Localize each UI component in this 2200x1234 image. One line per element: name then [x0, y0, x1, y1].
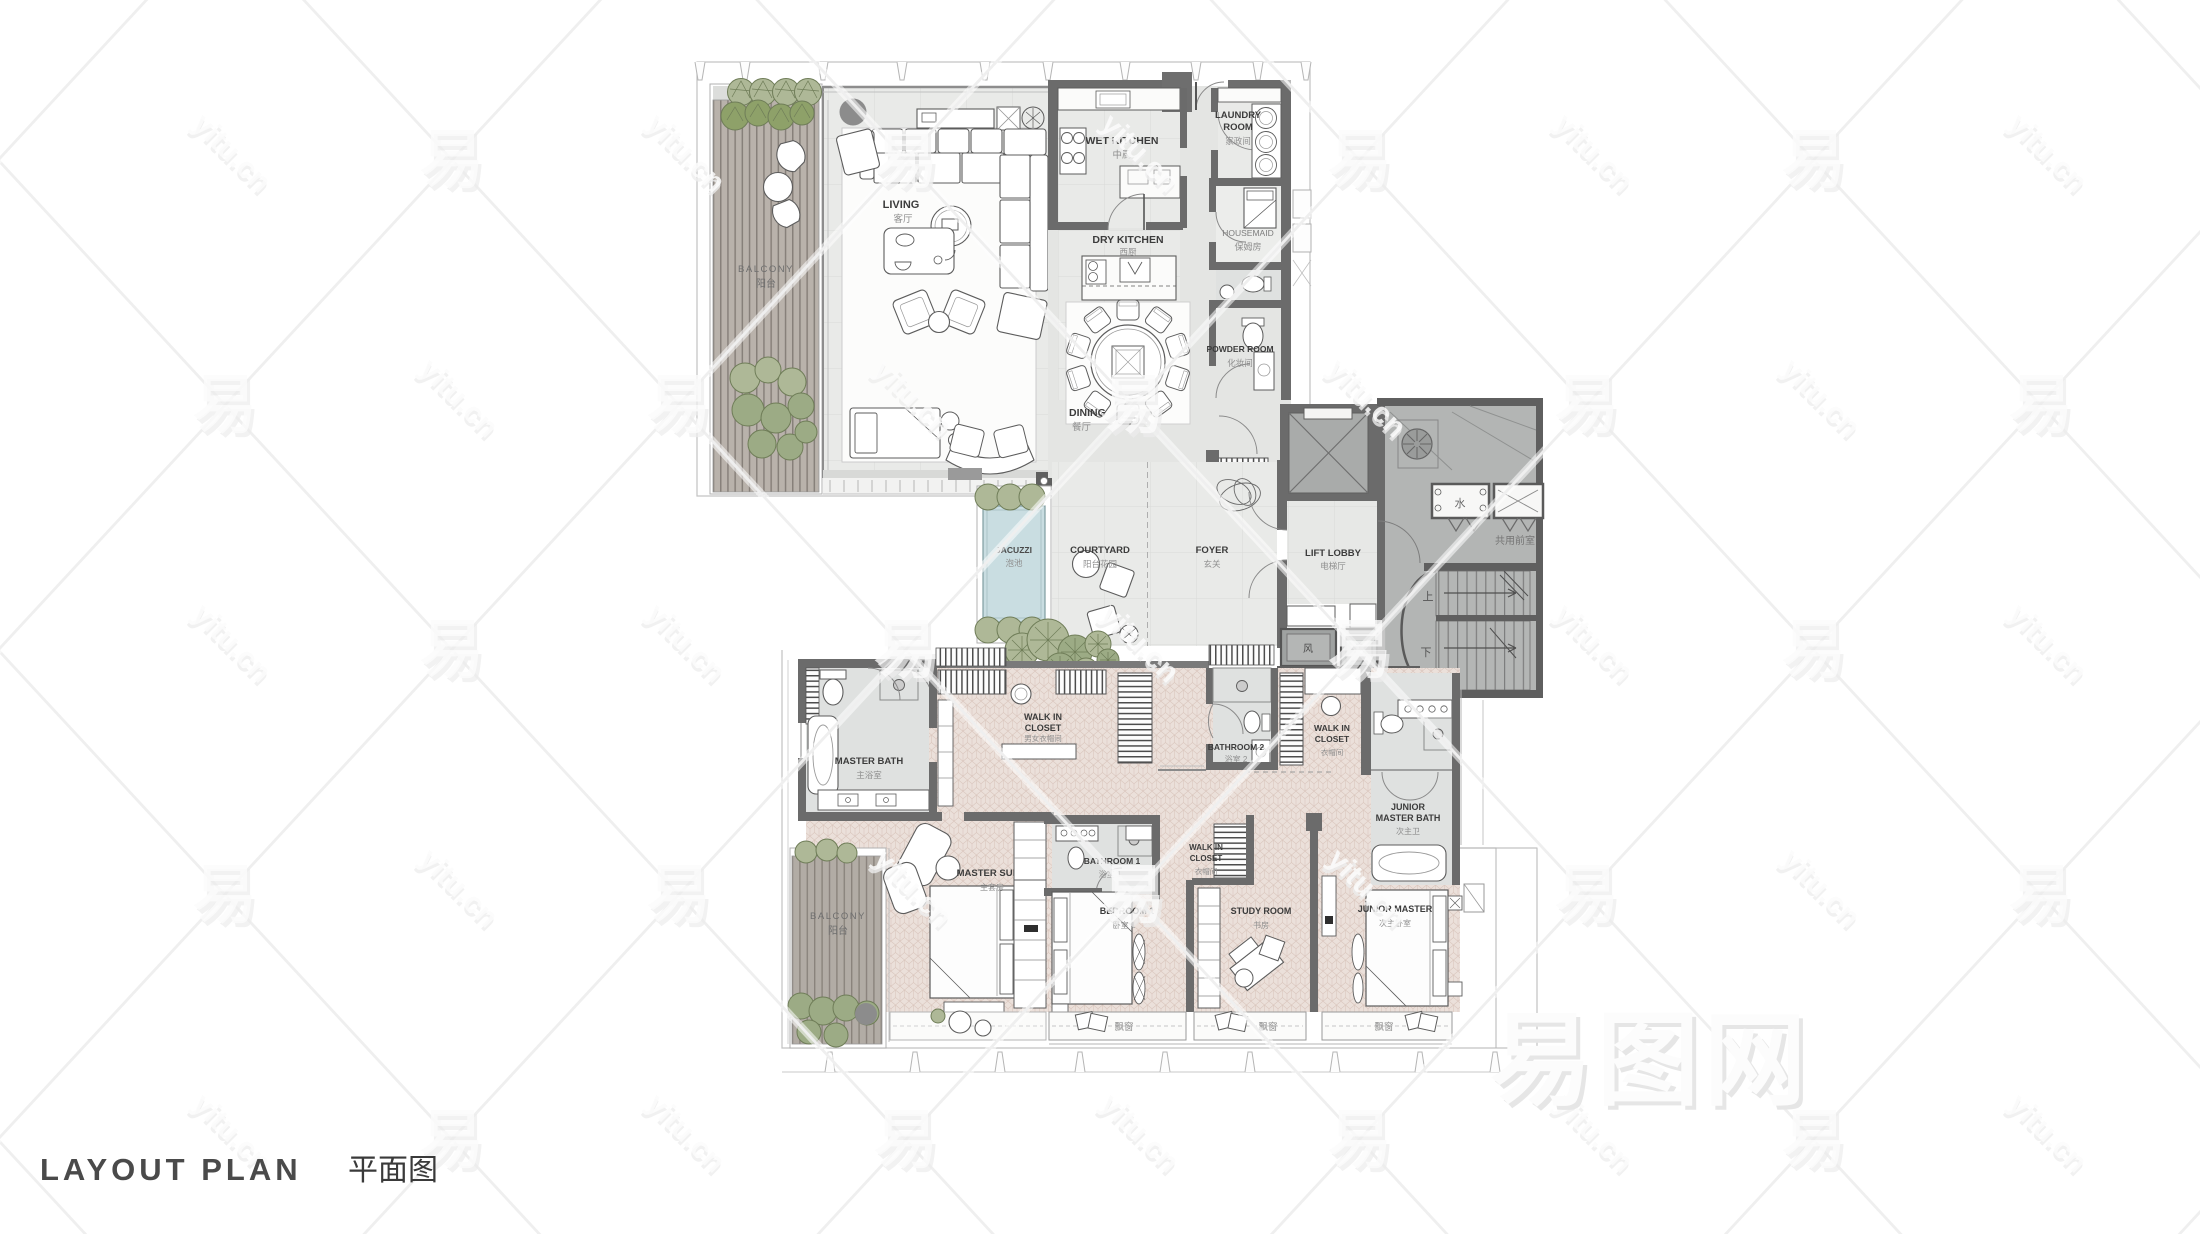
svg-text:BATHROOM 2: BATHROOM 2	[1208, 742, 1265, 752]
svg-text:LAUNDRY: LAUNDRY	[1215, 110, 1262, 121]
svg-text:BALCONY: BALCONY	[738, 264, 794, 275]
svg-text:MASTER BATH: MASTER BATH	[835, 756, 904, 767]
svg-text:LAYOUT PLAN: LAYOUT PLAN	[40, 1152, 302, 1187]
svg-text:共用前室: 共用前室	[1495, 534, 1535, 547]
svg-text:飘窗: 飘窗	[1374, 1021, 1393, 1033]
svg-text:男女衣帽间: 男女衣帽间	[1024, 733, 1062, 743]
svg-text:上: 上	[1423, 590, 1434, 603]
svg-text:WALK IN: WALK IN	[1314, 723, 1350, 733]
svg-text:易: 易	[2009, 859, 2073, 931]
svg-text:餐厅: 餐厅	[1072, 421, 1092, 433]
svg-text:LIFT LOBBY: LIFT LOBBY	[1305, 548, 1362, 559]
svg-text:BALCONY: BALCONY	[810, 911, 866, 922]
svg-text:下: 下	[1421, 647, 1432, 659]
svg-text:客厅: 客厅	[893, 213, 913, 225]
svg-text:易: 易	[874, 124, 938, 196]
svg-text:易: 易	[1101, 859, 1165, 931]
svg-text:易: 易	[874, 614, 938, 686]
svg-text:STUDY ROOM: STUDY ROOM	[1231, 906, 1292, 916]
svg-text:易: 易	[1328, 124, 1392, 196]
svg-text:易: 易	[1328, 1104, 1392, 1176]
svg-text:阳台: 阳台	[756, 277, 776, 290]
svg-text:保姆房: 保姆房	[1234, 241, 1261, 252]
svg-text:易: 易	[2009, 369, 2073, 441]
svg-text:易: 易	[1782, 614, 1846, 686]
svg-text:风: 风	[1303, 643, 1313, 655]
svg-text:易: 易	[1101, 369, 1165, 441]
svg-text:易: 易	[647, 369, 711, 441]
svg-text:易: 易	[647, 859, 711, 931]
svg-text:ROOM: ROOM	[1223, 122, 1253, 133]
svg-text:易: 易	[420, 614, 484, 686]
svg-text:CLOSET: CLOSET	[1025, 723, 1062, 733]
svg-text:COURTYARD: COURTYARD	[1070, 545, 1130, 556]
svg-text:易: 易	[1555, 369, 1619, 441]
svg-text:JUNIOR: JUNIOR	[1391, 802, 1426, 812]
svg-text:衣帽间: 衣帽间	[1321, 747, 1344, 757]
svg-text:MASTER BATH: MASTER BATH	[1376, 813, 1441, 823]
svg-text:CLOSET: CLOSET	[1315, 734, 1350, 744]
svg-text:CLOSET: CLOSET	[1190, 854, 1223, 863]
svg-text:易: 易	[1782, 124, 1846, 196]
svg-text:LIVING: LIVING	[883, 199, 920, 211]
svg-text:家政间: 家政间	[1225, 136, 1251, 146]
svg-text:平面图: 平面图	[348, 1154, 438, 1187]
svg-text:易: 易	[193, 859, 257, 931]
svg-text:HOUSEMAID: HOUSEMAID	[1222, 228, 1273, 238]
svg-text:衣帽间: 衣帽间	[1195, 866, 1218, 876]
svg-text:水: 水	[1455, 497, 1466, 510]
svg-text:易图网: 易图网	[1490, 1004, 1811, 1118]
svg-text:飘窗: 飘窗	[1114, 1021, 1133, 1033]
svg-text:易: 易	[420, 124, 484, 196]
svg-text:POWDER ROOM: POWDER ROOM	[1206, 344, 1273, 354]
svg-text:主浴室: 主浴室	[856, 770, 882, 780]
svg-text:WALK IN: WALK IN	[1024, 712, 1062, 722]
svg-text:易: 易	[1555, 859, 1619, 931]
svg-text:FOYER: FOYER	[1196, 545, 1229, 556]
svg-text:易: 易	[1328, 614, 1392, 686]
svg-text:WALK IN: WALK IN	[1189, 843, 1223, 852]
svg-text:书房: 书房	[1253, 920, 1269, 930]
svg-text:泡池: 泡池	[1005, 558, 1023, 568]
svg-text:易: 易	[193, 369, 257, 441]
svg-text:阳台: 阳台	[828, 924, 848, 937]
svg-text:主套房: 主套房	[980, 882, 1004, 892]
svg-text:次主卫: 次主卫	[1396, 826, 1420, 836]
svg-text:阳台花园: 阳台花园	[1083, 559, 1117, 569]
svg-text:西厨: 西厨	[1119, 247, 1137, 257]
svg-text:易: 易	[874, 1104, 938, 1176]
svg-text:DRY KITCHEN: DRY KITCHEN	[1092, 234, 1163, 246]
svg-text:化妆间: 化妆间	[1227, 358, 1253, 368]
svg-text:电梯厅: 电梯厅	[1320, 561, 1346, 571]
svg-text:玄关: 玄关	[1203, 559, 1221, 569]
